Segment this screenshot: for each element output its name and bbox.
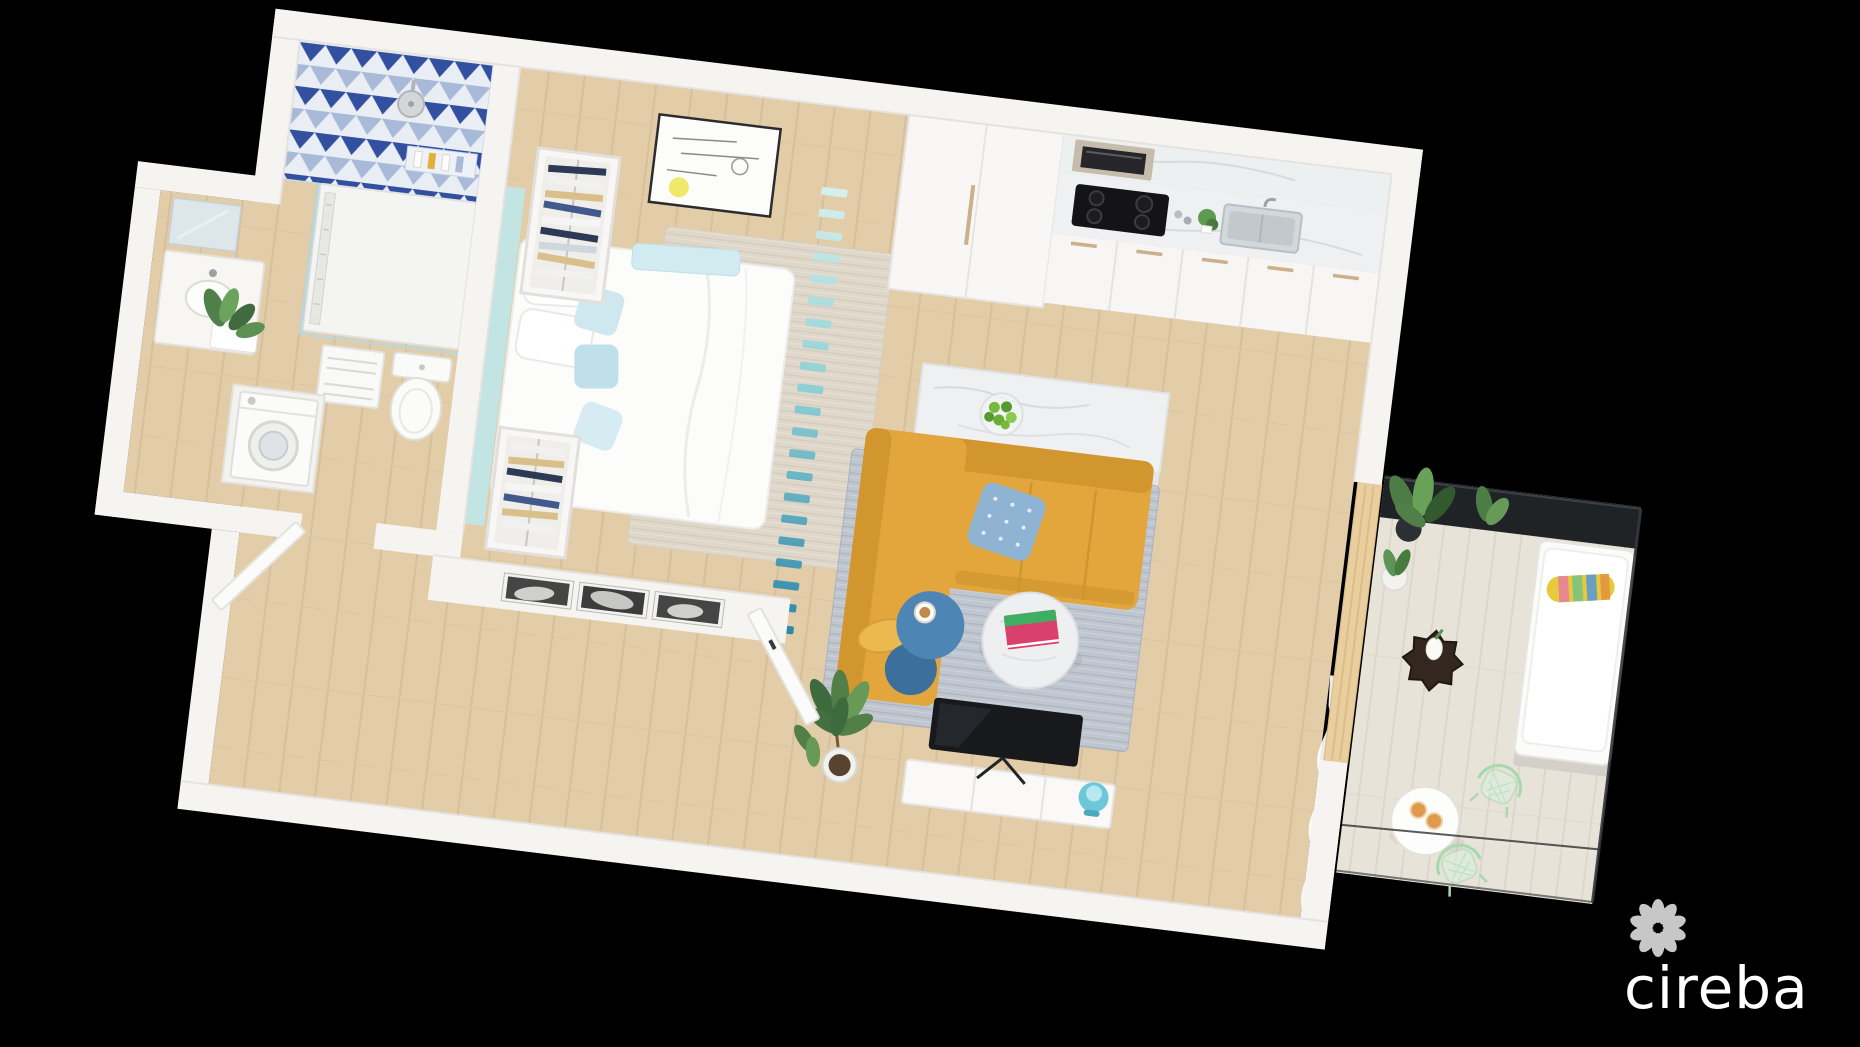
logo-text: cireba [1624, 954, 1809, 1022]
floorplan-canvas: cireba [0, 0, 1860, 1047]
drink-glass-1 [1410, 801, 1428, 819]
blue-triangle-tile-wall [273, 39, 494, 203]
floorplan-render: cireba [0, 0, 1860, 1047]
room-laundry [222, 384, 325, 492]
wardrobe-upper [521, 148, 620, 303]
book [1004, 610, 1060, 650]
drink-glass-2 [1425, 812, 1443, 830]
striped-bolster-pillow [1546, 573, 1615, 603]
wall-art-frame [649, 114, 781, 216]
towel-shelf [316, 345, 384, 408]
wardrobe-lower [485, 427, 579, 558]
